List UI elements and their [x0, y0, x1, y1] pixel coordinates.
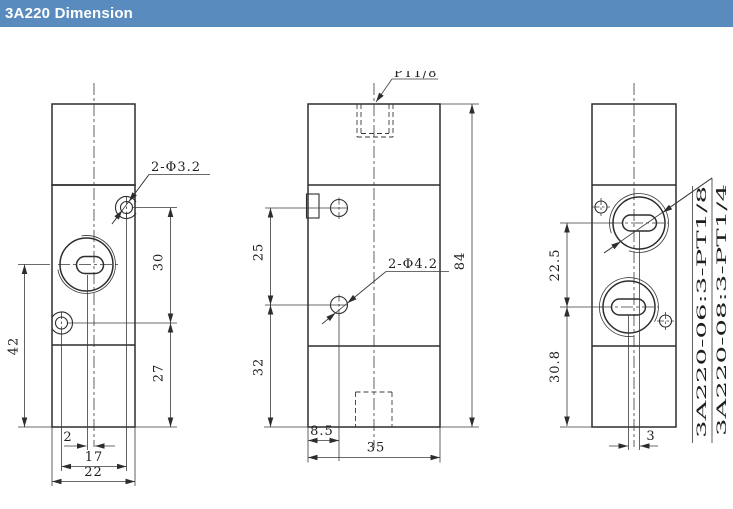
dim-label-30.8: 30.8 [548, 350, 563, 383]
page-title: 3A220 Dimension [5, 5, 133, 22]
dim-label-17: 17 [85, 450, 104, 465]
drawing-page: 3A220 Dimension [0, 0, 733, 509]
dim-label-8.5: 8.5 [310, 424, 334, 439]
model-label-pt14: 3A220-08:3-PT1/4 [715, 184, 730, 436]
dim-label-27: 27 [152, 364, 167, 383]
dim-label-42: 42 [7, 337, 22, 356]
title-bar: 3A220 Dimension [0, 0, 733, 27]
hole-callout-label: 2-Φ4.2 [388, 257, 438, 272]
body-outline [52, 185, 135, 427]
dim-label-84: 84 [453, 252, 468, 271]
hole-callout-label: 2-Φ3.2 [151, 160, 201, 175]
leader-arrow [376, 79, 392, 102]
dim-label-22.5: 22.5 [548, 249, 563, 282]
dim-label-3: 3 [646, 429, 655, 444]
dim-label-25: 25 [252, 243, 267, 262]
leader-arrow [347, 272, 386, 304]
leader-arrow [322, 313, 336, 324]
dim-label-30: 30 [152, 253, 167, 272]
dimension-drawing: 2-Φ3.2 42 30 27 [0, 27, 733, 509]
dim-label-22: 22 [84, 465, 103, 480]
right-view: 22.5 30.8 3 3A220-06:3-PT1/8 3A220-08:3-… [548, 83, 730, 450]
dim-label-32: 32 [252, 358, 267, 377]
body-outline [52, 104, 135, 185]
dim-label-2: 2 [63, 430, 72, 445]
leader-arrow [604, 242, 621, 254]
model-label-pt18: 3A220-06:3-PT1/8 [695, 186, 710, 438]
dim-label-35: 35 [367, 441, 386, 456]
leader-arrow [129, 175, 149, 202]
spool-slot [77, 257, 104, 274]
left-view: 2-Φ3.2 42 30 27 [7, 83, 211, 486]
center-view: PT1/8 2-Φ4.2 25 32 84 [252, 66, 480, 463]
